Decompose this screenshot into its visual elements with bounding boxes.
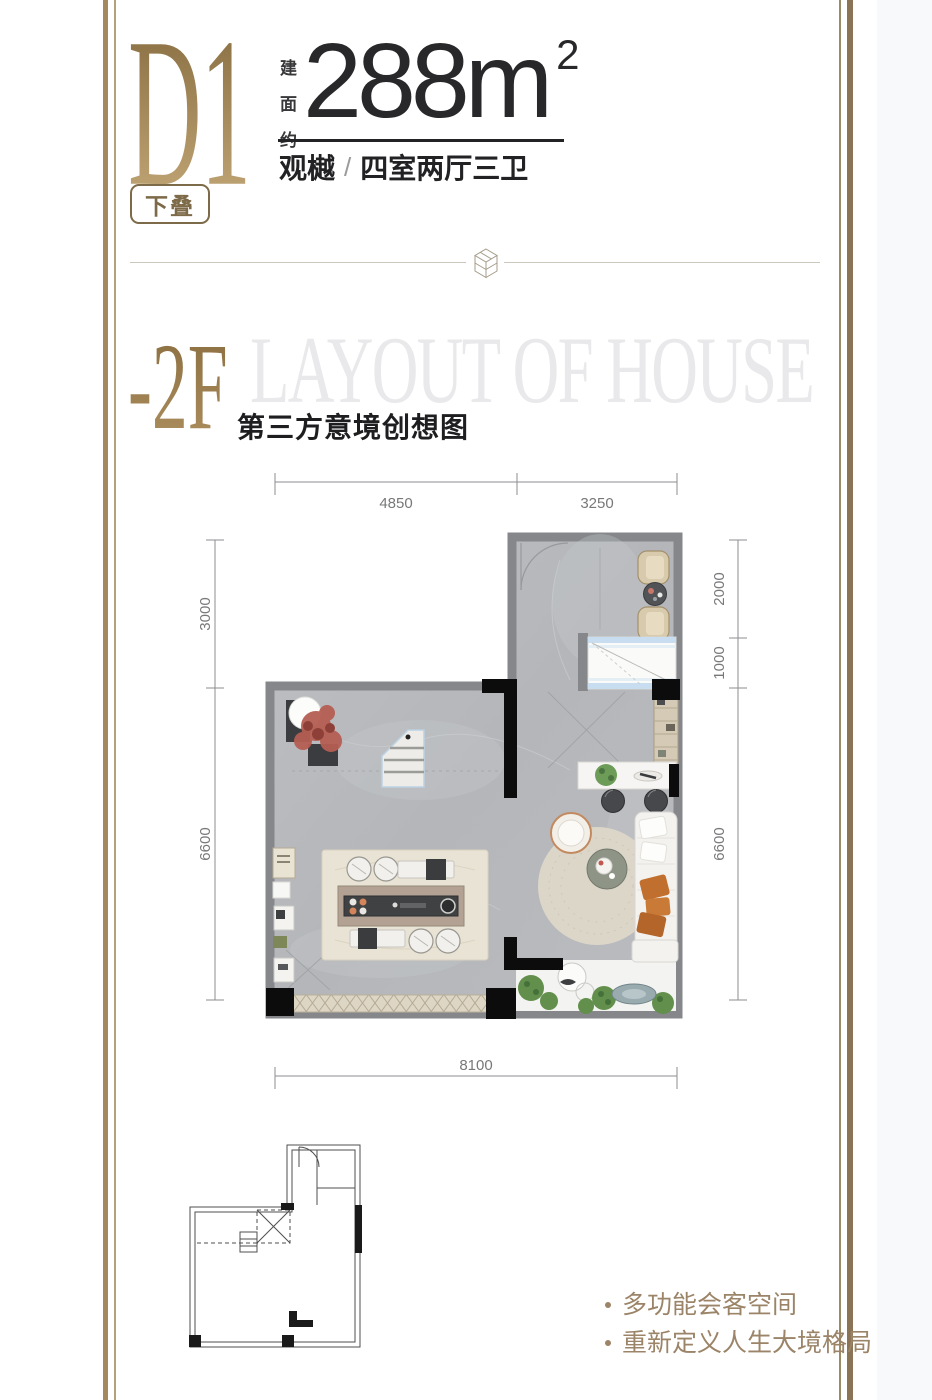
dim-top-left: 4850 (379, 495, 412, 512)
dim-left-upper: 3000 (197, 597, 214, 630)
floor-plan-svg: 4850 3250 3000 6600 2000 1000 6600 8100 (0, 0, 932, 1400)
main-floor-plan (266, 534, 680, 1019)
dim-left-lower: 6600 (197, 827, 214, 860)
dim-right-lower: 6600 (711, 827, 728, 860)
dim-right-middle: 1000 (711, 646, 728, 679)
mini-floor-plan (189, 1145, 362, 1347)
selling-point-text: 多功能会客空间 (622, 1288, 797, 1322)
dim-right-upper: 2000 (711, 572, 728, 605)
selling-point-item: 重新定义人生大境格局 (605, 1326, 872, 1360)
bullet-dot (605, 1340, 611, 1346)
dim-bottom: 8100 (459, 1057, 492, 1074)
selling-points: 多功能会客空间 重新定义人生大境格局 (605, 1288, 872, 1360)
left-wall-items (273, 848, 295, 982)
bar-area (322, 850, 488, 960)
bullet-dot (605, 1302, 611, 1308)
selling-point-item: 多功能会客空间 (605, 1288, 872, 1322)
selling-point-text: 重新定义人生大境格局 (622, 1326, 872, 1360)
dim-top-right: 3250 (580, 495, 613, 512)
tile-strip (292, 995, 494, 1012)
hall-cabinet (654, 695, 678, 769)
